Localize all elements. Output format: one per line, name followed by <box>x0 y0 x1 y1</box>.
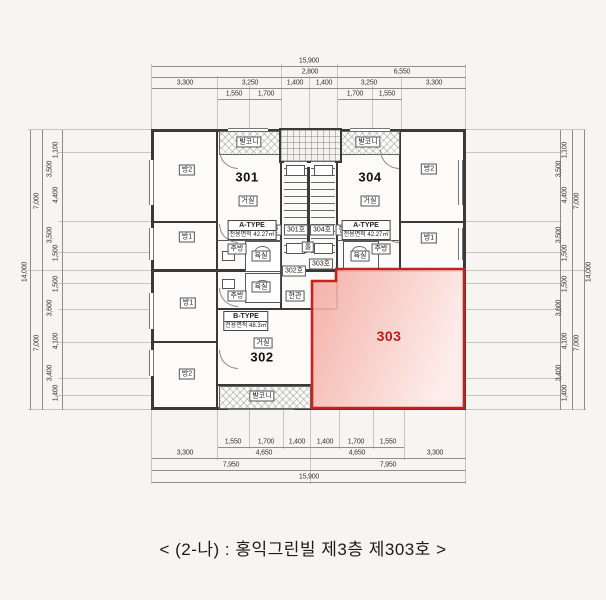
floor-plan-page: 15,900 2,800 6,550 3,300 3,250 1,400 1,4… <box>0 0 606 600</box>
unit-303-highlight <box>0 0 606 600</box>
unit-number-303: 303 <box>377 328 402 344</box>
caption: < (2-나) : 홍익그린빌 제3층 제303호 > <box>0 535 606 560</box>
